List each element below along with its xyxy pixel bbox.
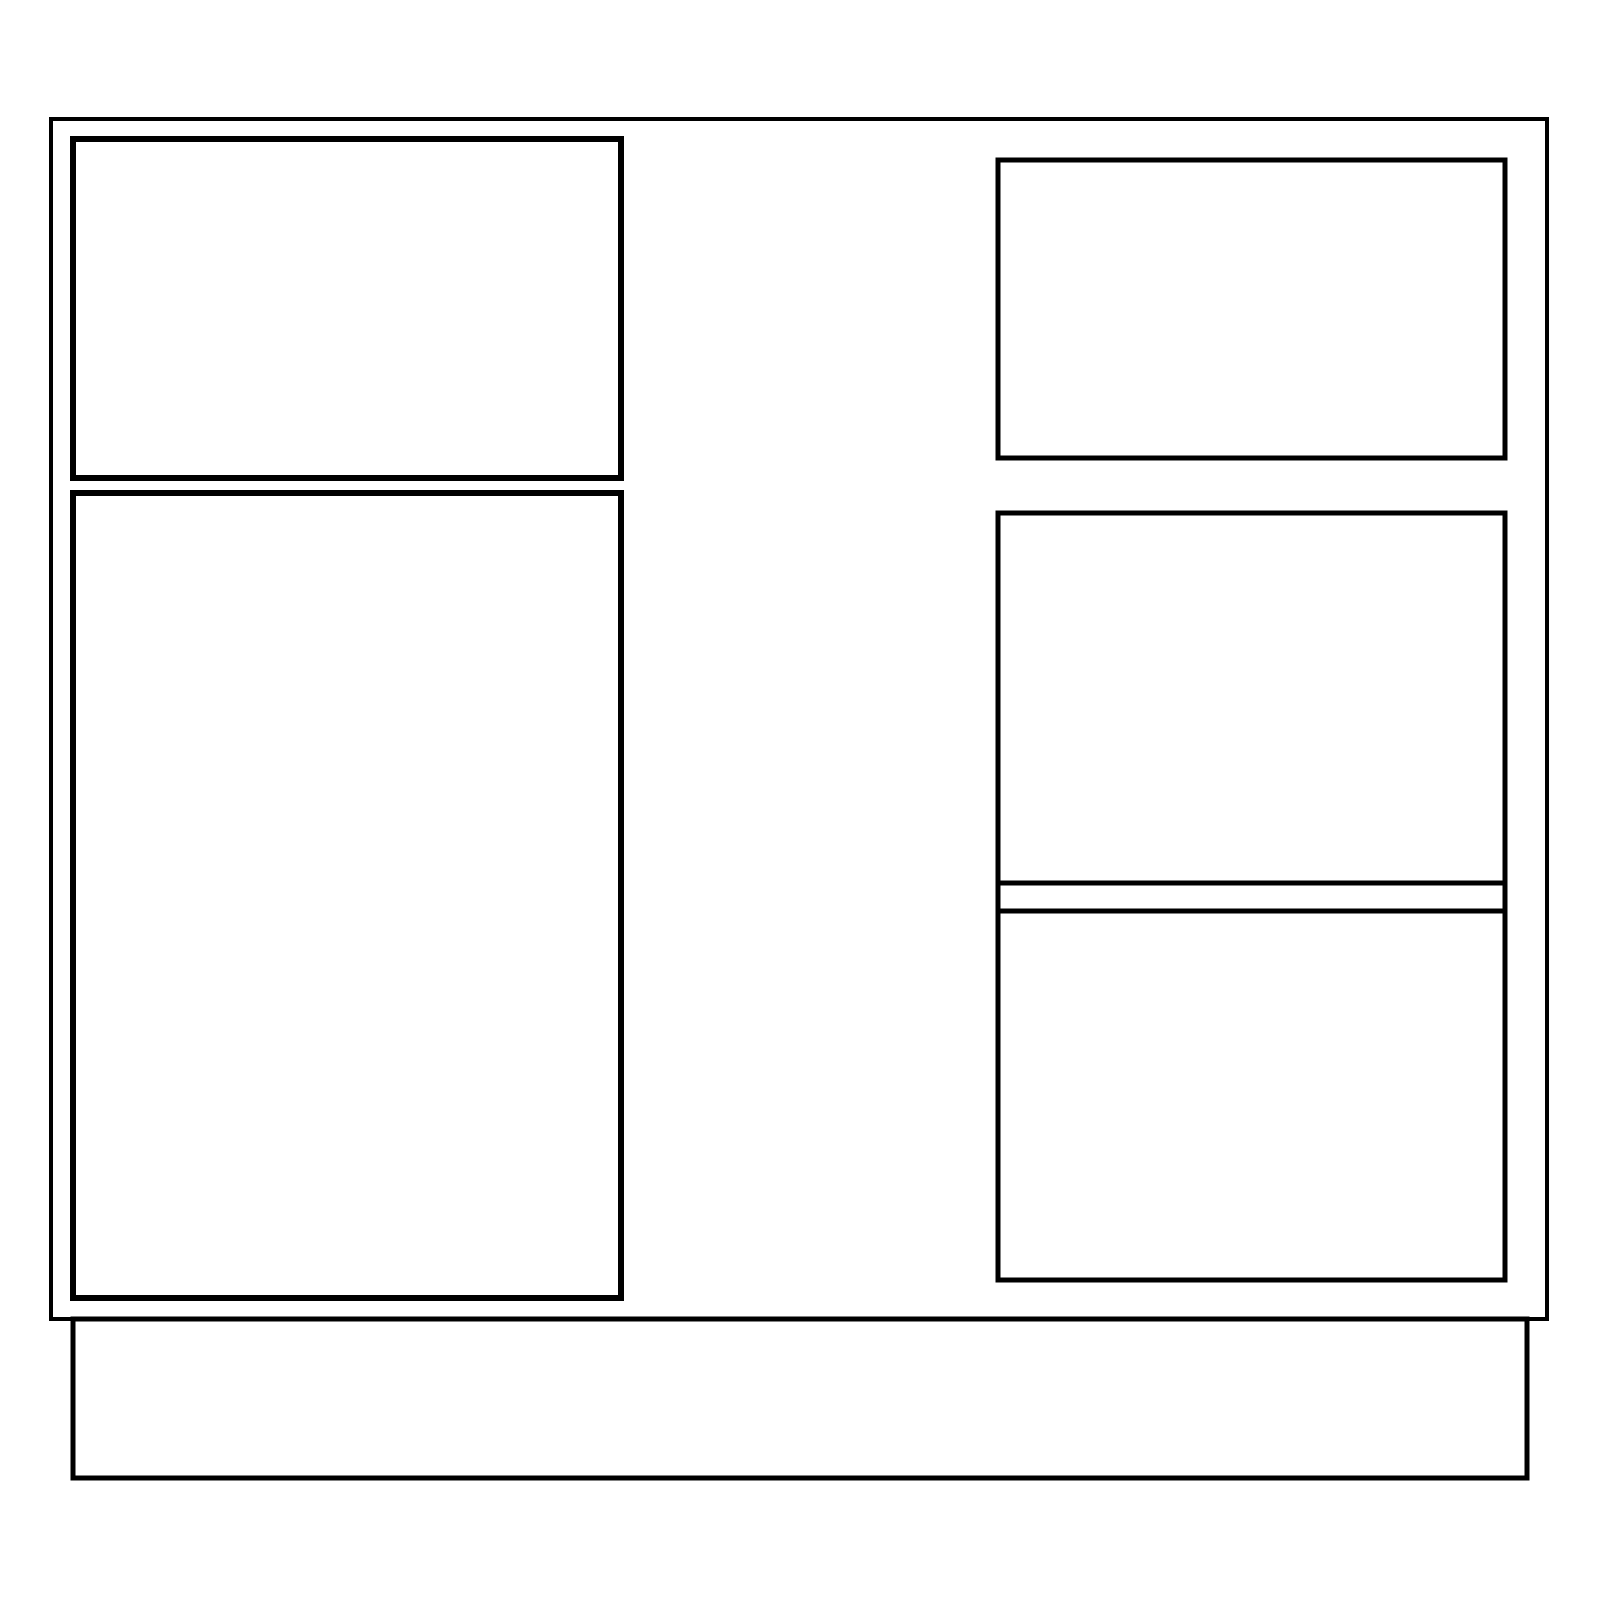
left-door-panel: [73, 493, 621, 1298]
right-lower-panel-block: [998, 513, 1505, 1280]
cabinet-line-drawing: [0, 0, 1600, 1600]
cabinet-carcass-outline: [51, 119, 1547, 1319]
cabinet-elevation-svg: [0, 0, 1600, 1600]
toe-kick-base: [73, 1319, 1527, 1478]
right-drawer-front-top: [998, 160, 1505, 458]
left-drawer-front: [73, 139, 621, 478]
